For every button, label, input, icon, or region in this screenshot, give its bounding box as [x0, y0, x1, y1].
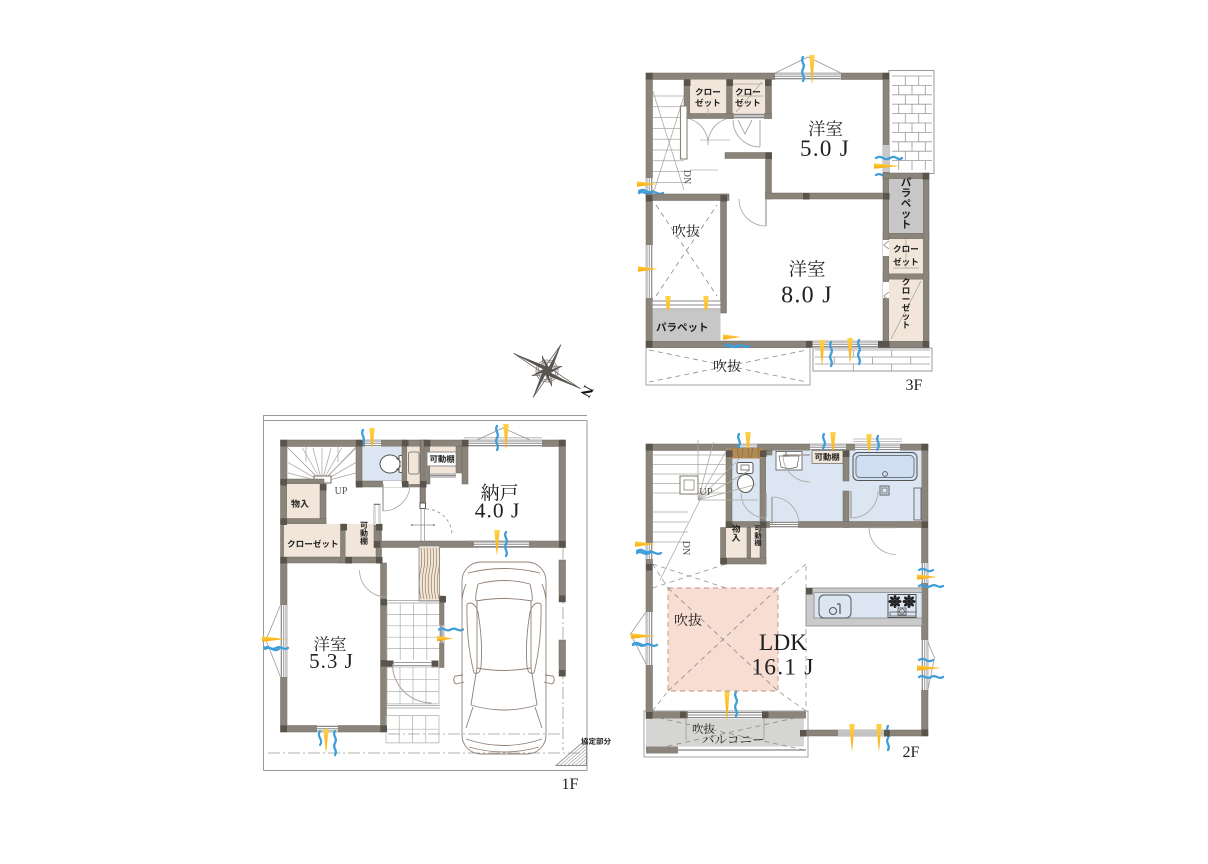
svg-text:5.0 J: 5.0 J — [800, 136, 850, 161]
svg-text:16.1 J: 16.1 J — [751, 655, 814, 681]
svg-text:DN: DN — [681, 170, 692, 184]
svg-text:5.3 J: 5.3 J — [309, 649, 354, 673]
svg-text:UP: UP — [335, 486, 348, 497]
svg-text:3F: 3F — [906, 377, 923, 394]
svg-text:1F: 1F — [562, 776, 579, 793]
svg-text:DN: DN — [680, 541, 691, 555]
svg-text:2F: 2F — [903, 744, 920, 761]
svg-text:8.0 J: 8.0 J — [781, 283, 833, 309]
svg-text:UP: UP — [699, 487, 713, 498]
svg-text:4.0 J: 4.0 J — [475, 499, 521, 523]
svg-text:LDK: LDK — [759, 630, 807, 656]
